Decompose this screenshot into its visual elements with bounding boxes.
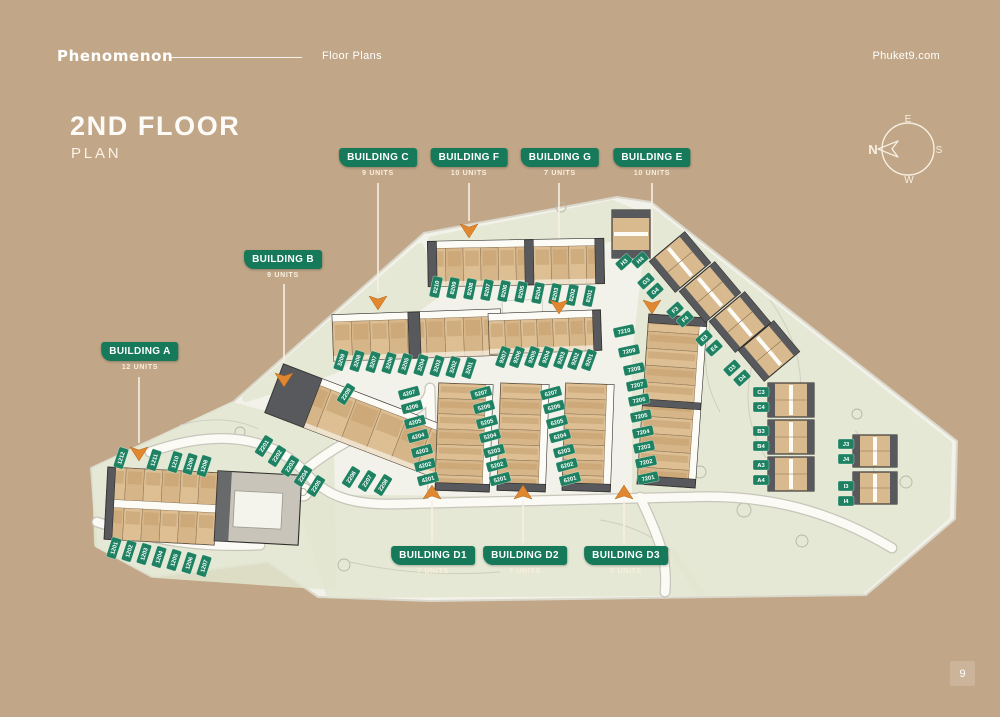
building-c-badge[interactable]: BUILDING C [339,148,417,167]
page-title: 2ND FLOOR [70,111,240,142]
compass-n: N [868,142,877,157]
svg-text:C4: C4 [757,405,765,411]
building-g-badge[interactable]: BUILDING G [521,148,599,167]
compass-w: W [904,175,914,186]
building-d1-units-label: 7 UNITS [417,568,449,575]
compass-circle [882,123,934,175]
building-e-units-label: 10 UNITS [634,170,670,177]
building-a-units-label: 12 UNITS [122,364,158,371]
svg-text:C3: C3 [757,390,765,396]
unit-tag-C4[interactable]: C4 [753,402,769,412]
building-g-badge-label: BUILDING G [529,152,591,163]
building-d2-badge[interactable]: BUILDING D2 [483,546,567,565]
svg-text:A3: A3 [757,463,765,469]
unit-tag-C3[interactable]: C3 [753,387,769,397]
building-a-badge-label: BUILDING A [109,346,170,357]
building-a-badge[interactable]: BUILDING A [101,342,178,361]
building-d3-badge[interactable]: BUILDING D3 [584,546,668,565]
chalet-footprint [768,457,814,491]
north-arrow-icon [878,141,898,157]
building-d2-badge-label: BUILDING D2 [491,550,559,561]
building-f-badge-label: BUILDING F [439,152,500,163]
breadcrumb-floor-plans: Floor Plans [322,50,382,62]
svg-text:J3: J3 [843,442,850,448]
chalet-footprint [853,435,897,467]
compass-s: S [936,145,943,156]
svg-text:I3: I3 [844,484,850,490]
compass-e: E [905,114,912,125]
building-e-badge[interactable]: BUILDING E [613,148,690,167]
building-a-annex [214,471,302,545]
chalet-footprint [768,420,814,454]
page-number: 9 [950,661,975,686]
building-c-units-label: 9 UNITS [362,170,394,177]
building-f-badge[interactable]: BUILDING F [431,148,508,167]
building-c-badge-label: BUILDING C [347,152,409,163]
building-d1-badge-label: BUILDING D1 [399,550,467,561]
svg-text:J4: J4 [843,457,850,463]
brand-logo[interactable]: Phenomenon [57,47,173,65]
unit-tag-J3[interactable]: J3 [838,439,854,449]
building-b-units-label: 9 UNITS [267,272,299,279]
building-a-footprint [104,467,218,545]
chalet-footprint [768,383,814,417]
building-d3-units-label: 7 UNITS [610,568,642,575]
unit-tag-J4[interactable]: J4 [838,454,854,464]
site-link[interactable]: Phuket9.com [872,50,940,62]
floor-plan-page: 1201120212031204120512061207120812091210… [0,0,1000,717]
building-d3-badge-label: BUILDING D3 [592,550,660,561]
unit-tag-B3[interactable]: B3 [753,426,769,436]
unit-tag-A3[interactable]: A3 [753,460,769,470]
building-b-badge-label: BUILDING B [252,254,314,265]
building-d2-units-label: 7 UNITS [509,568,541,575]
building-d1-badge[interactable]: BUILDING D1 [391,546,475,565]
svg-text:B4: B4 [757,444,765,450]
header-divider-line [170,57,302,58]
building-e-badge-label: BUILDING E [621,152,682,163]
building-f-units-label: 10 UNITS [451,170,487,177]
unit-tag-I3[interactable]: I3 [838,481,854,491]
unit-tag-B4[interactable]: B4 [753,441,769,451]
unit-tag-A4[interactable]: A4 [753,475,769,485]
svg-text:I4: I4 [844,499,850,505]
svg-text:B3: B3 [757,429,765,435]
building-g-units-label: 7 UNITS [544,170,576,177]
compass-rose: N E S W [858,103,952,197]
chalet-footprint [853,472,897,504]
unit-tag-I4[interactable]: I4 [838,496,854,506]
page-subtitle: PLAN [71,145,121,162]
svg-text:A4: A4 [757,478,765,484]
building-b-badge[interactable]: BUILDING B [244,250,322,269]
chalet-footprint [612,210,650,258]
